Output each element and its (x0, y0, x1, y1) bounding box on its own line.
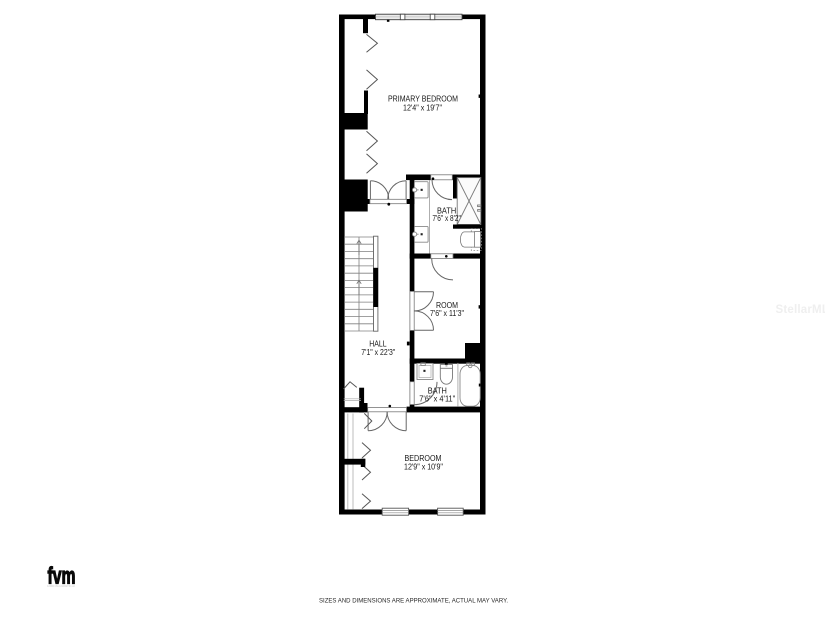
svg-text:7'1" x 22'3": 7'1" x 22'3" (361, 348, 395, 357)
svg-text:PRIMARY BEDROOM: PRIMARY BEDROOM (388, 94, 458, 104)
svg-text:7'6" x 4'11": 7'6" x 4'11" (419, 395, 455, 404)
svg-text:7'6" x 11'3": 7'6" x 11'3" (430, 309, 464, 318)
svg-text:7'6" x 8'2": 7'6" x 8'2" (432, 214, 460, 223)
svg-text:FLORIDA VISUAL MARKETING LLC: FLORIDA VISUAL MARKETING LLC (47, 585, 75, 588)
svg-text:SIZES AND DIMENSIONS ARE APPRO: SIZES AND DIMENSIONS ARE APPROXIMATE, AC… (319, 598, 508, 605)
svg-text:12'9" x 10'9": 12'9" x 10'9" (404, 462, 443, 471)
svg-text:StellarMLS: StellarMLS (776, 304, 825, 316)
svg-text:12'4" x 19'7": 12'4" x 19'7" (403, 103, 442, 112)
